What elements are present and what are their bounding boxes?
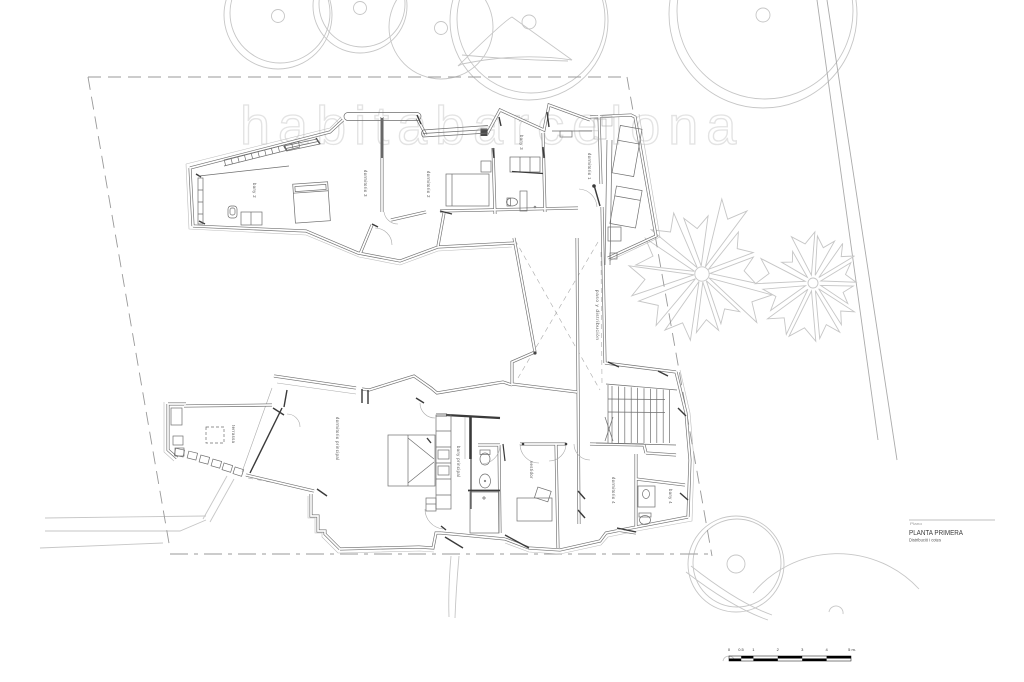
svg-text:bany 3: bany 3 (519, 135, 524, 150)
svg-text:bany principal: bany principal (456, 446, 461, 477)
svg-text:bany 4: bany 4 (668, 489, 673, 504)
svg-text:dormitorio 4: dormitorio 4 (611, 477, 616, 504)
svg-text:dormitorio 1: dormitorio 1 (587, 153, 592, 180)
svg-text:5 m.: 5 m. (848, 647, 856, 652)
svg-text:vestidor: vestidor (529, 461, 534, 479)
svg-text:paso y distribución: paso y distribución (595, 290, 600, 341)
svg-text:0.5: 0.5 (738, 647, 744, 652)
svg-text:dormitorio principal: dormitorio principal (335, 417, 340, 460)
svg-text:Distribució i cotes: Distribució i cotes (909, 538, 941, 543)
svg-text:bany 2: bany 2 (252, 183, 257, 198)
svg-text:dormitorio 3: dormitorio 3 (363, 170, 368, 197)
svg-text:terrassa: terrassa (231, 425, 236, 444)
svg-text:Plano: Plano (910, 522, 922, 526)
svg-text:dormitorio 2: dormitorio 2 (426, 171, 431, 198)
svg-text:PLANTA PRIMERA: PLANTA PRIMERA (909, 528, 964, 537)
